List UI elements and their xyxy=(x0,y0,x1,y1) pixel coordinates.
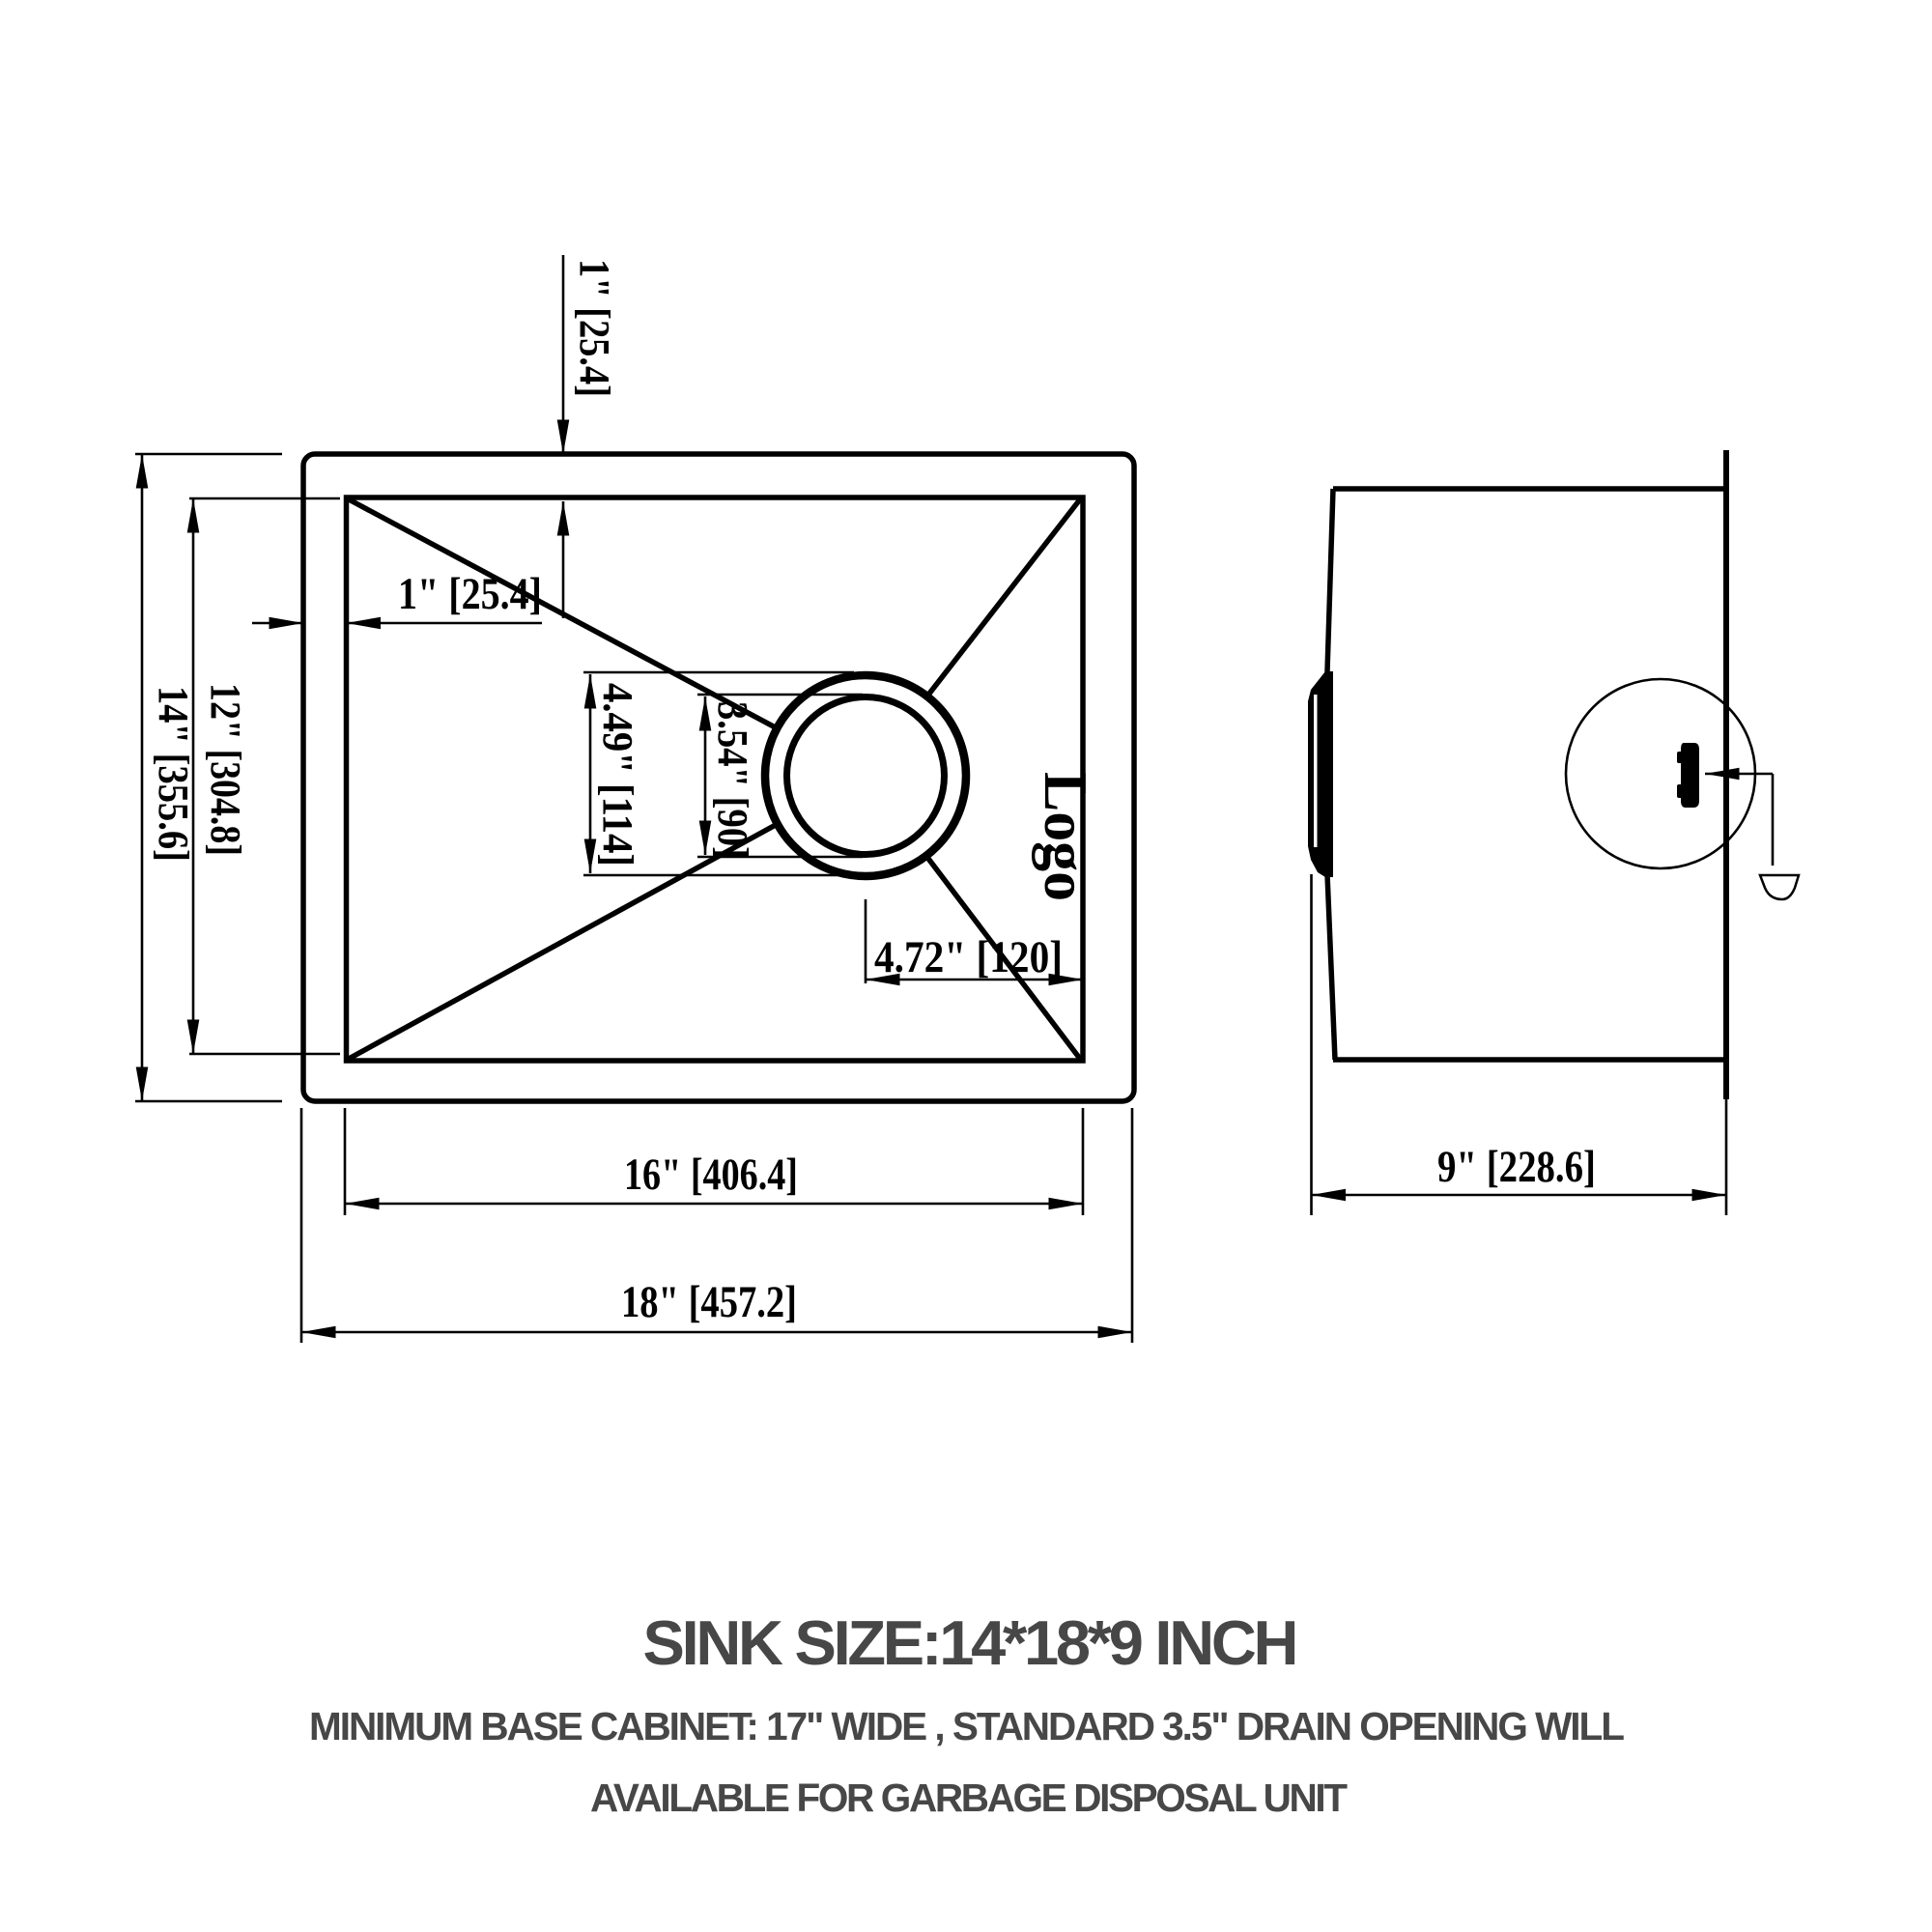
svg-text:18" [457.2]: 18" [457.2] xyxy=(621,1277,797,1327)
svg-text:4.49" [114]: 4.49" [114] xyxy=(594,683,641,867)
svg-text:AVAILABLE FOR GARBAGE DISPOSAL: AVAILABLE FOR GARBAGE DISPOSAL UNIT xyxy=(590,1776,1348,1820)
svg-text:MINIMUM BASE CABINET: 17" WIDE: MINIMUM BASE CABINET: 17" WIDE , STANDAR… xyxy=(309,1704,1625,1748)
svg-text:9" [228.6]: 9" [228.6] xyxy=(1437,1142,1596,1192)
svg-text:4.72" [120]: 4.72" [120] xyxy=(874,932,1063,982)
svg-text:12" [304.8]: 12" [304.8] xyxy=(202,683,249,856)
svg-text:Logo: Logo xyxy=(1032,772,1100,901)
svg-text:16" [406.4]: 16" [406.4] xyxy=(624,1150,798,1200)
svg-text:1" [25.4]: 1" [25.4] xyxy=(571,259,618,397)
svg-text:1" [25.4]: 1" [25.4] xyxy=(398,569,542,619)
svg-text:3.54" [90]: 3.54" [90] xyxy=(709,701,756,859)
svg-text:14" [355.6]: 14" [355.6] xyxy=(150,686,197,862)
svg-text:SINK SIZE:14*18*9 INCH: SINK SIZE:14*18*9 INCH xyxy=(643,1607,1299,1678)
